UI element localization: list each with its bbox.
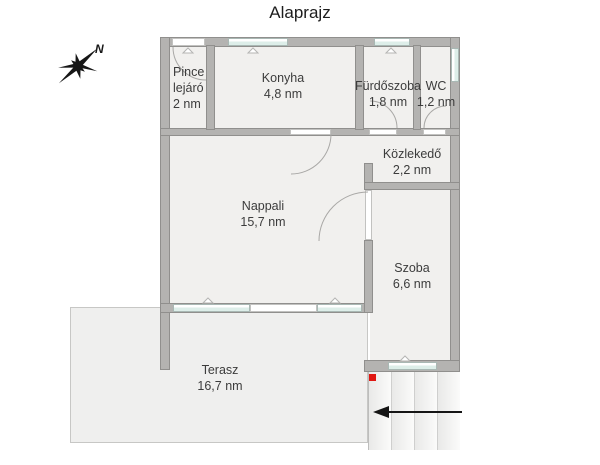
room-area: 1,2 nm — [406, 94, 466, 110]
room-label-terasz: Terasz 16,7 nm — [170, 362, 270, 394]
window-opening-mark — [203, 298, 213, 303]
room-name: Terasz — [170, 362, 270, 378]
door-arc-szoba — [319, 192, 368, 241]
room-area: 15,7 nm — [213, 214, 313, 230]
room-name: Pince lejáró — [173, 64, 215, 96]
room-label-pince: Pince lejáró 2 nm — [173, 64, 215, 112]
room-name: Konyha — [233, 70, 333, 86]
room-label-wc: WC 1,2 nm — [406, 78, 466, 110]
room-name: WC — [406, 78, 466, 94]
window-opening-mark — [248, 48, 258, 53]
room-area: 2,2 nm — [362, 162, 462, 178]
window-opening-mark — [183, 48, 193, 53]
floor-plan-canvas: Alaprajz N — [0, 0, 600, 465]
window-opening-mark — [386, 48, 396, 53]
room-area: 6,6 nm — [362, 276, 462, 292]
stair-direction-arrow-icon — [373, 406, 462, 418]
room-area: 16,7 nm — [170, 378, 270, 394]
room-label-szoba: Szoba 6,6 nm — [362, 260, 462, 292]
room-name: Nappali — [213, 198, 313, 214]
window-opening-mark — [400, 356, 410, 361]
room-name: Közlekedő — [362, 146, 462, 162]
door-arc-konyha — [291, 134, 331, 174]
room-area: 4,8 nm — [233, 86, 333, 102]
room-area: 2 nm — [173, 96, 215, 112]
window-opening-mark — [330, 298, 340, 303]
room-label-konyha: Konyha 4,8 nm — [233, 70, 333, 102]
room-name: Szoba — [362, 260, 462, 276]
room-label-kozlekedo: Közlekedő 2,2 nm — [362, 146, 462, 178]
room-label-nappali: Nappali 15,7 nm — [213, 198, 313, 230]
